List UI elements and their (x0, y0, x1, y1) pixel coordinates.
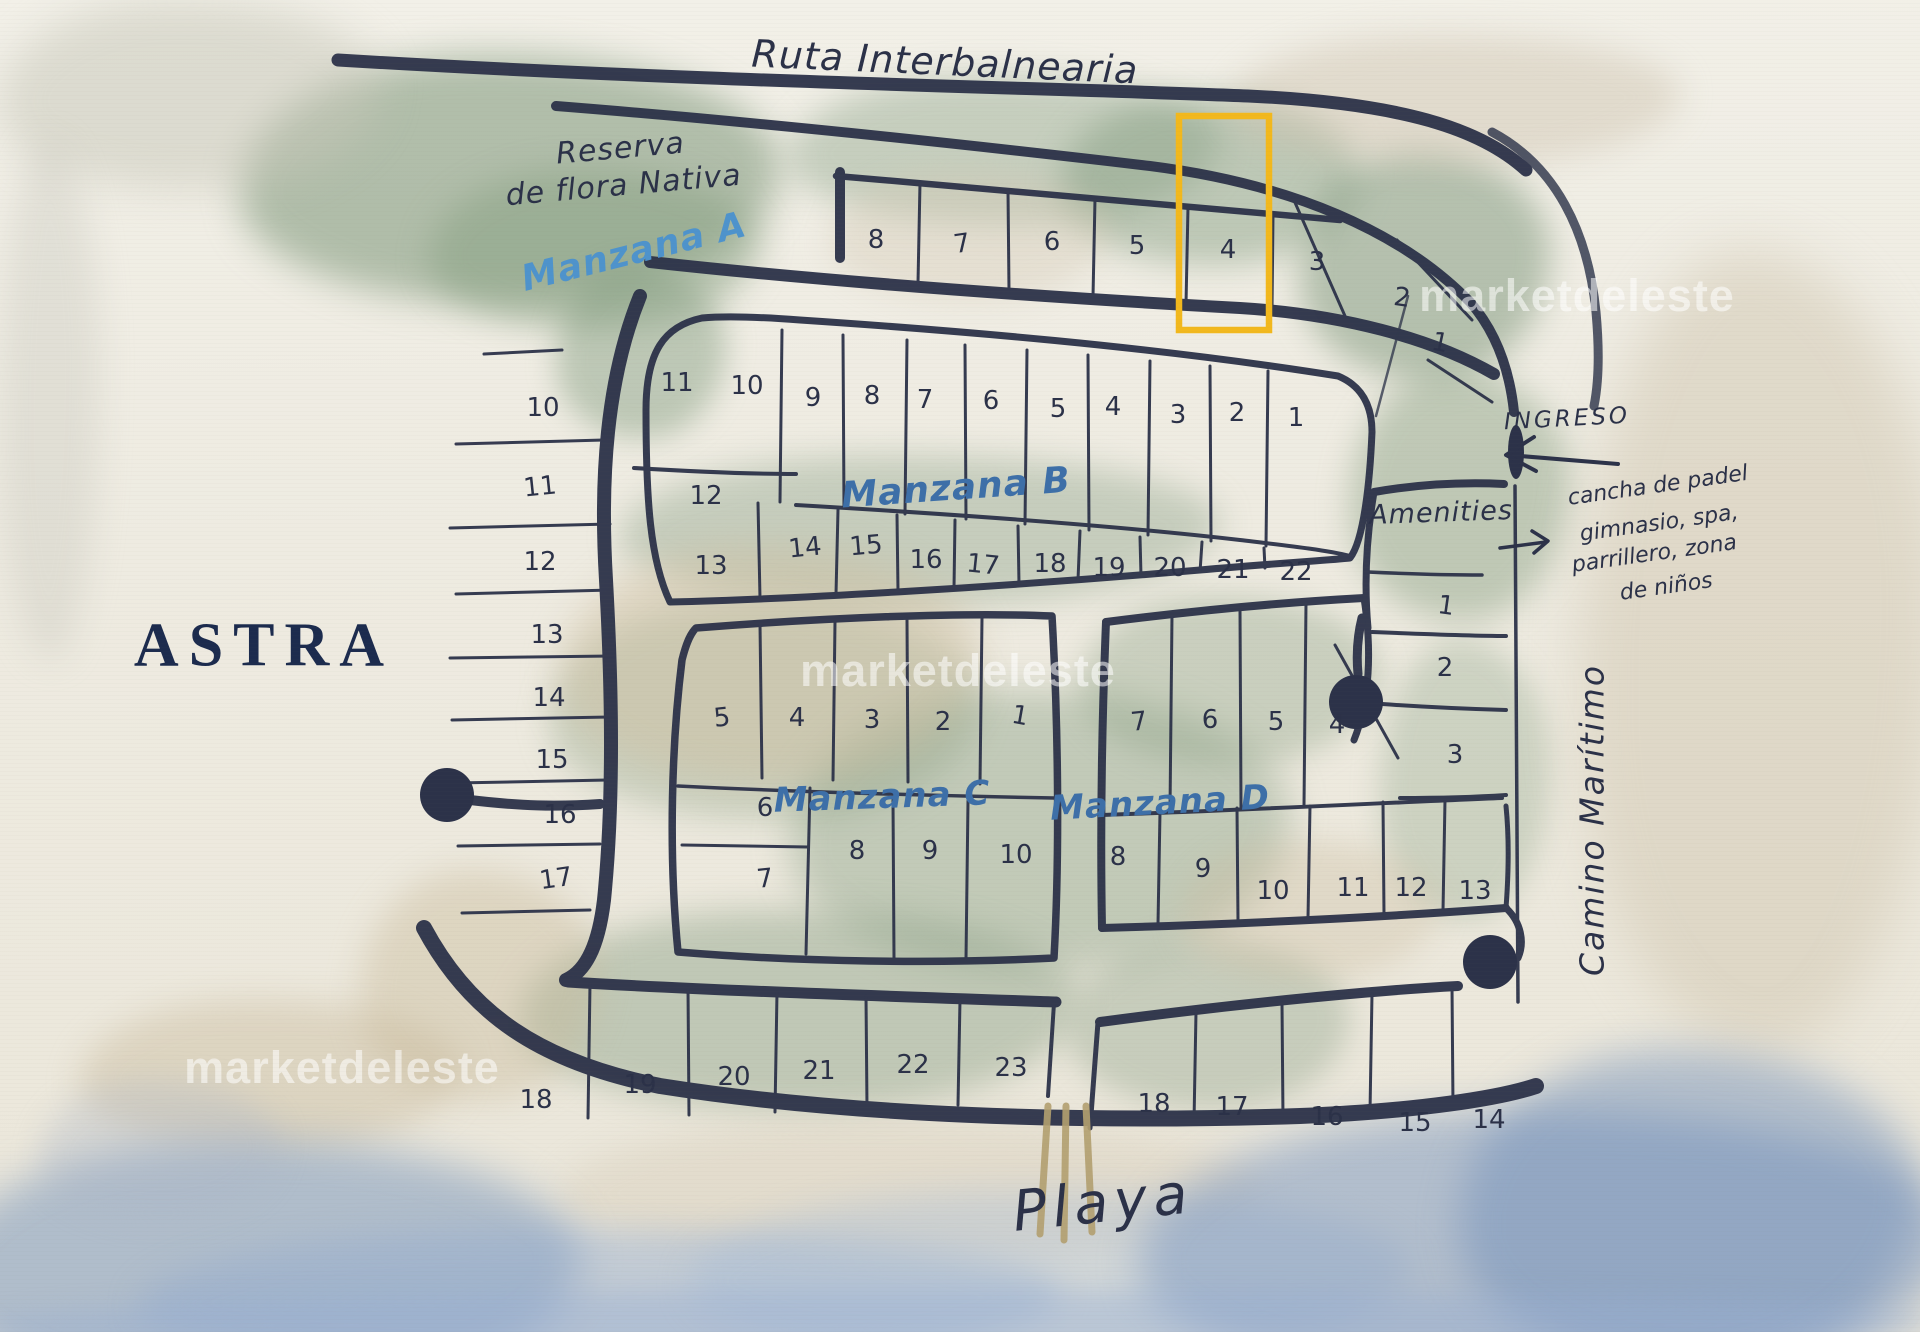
lot-number-south-west-row-20: 20 (717, 1062, 750, 1092)
lot-number-manzana-b-top-9: 9 (805, 383, 822, 413)
lot-number-amenities-3: 3 (1447, 740, 1464, 770)
lot-number-west-strip-12: 12 (523, 547, 556, 577)
lot-number-manzana-b-top-7: 7 (917, 385, 934, 415)
lot-number-west-strip-10: 10 (526, 393, 559, 423)
lot-number-manzana-b-top-10: 10 (730, 371, 763, 401)
lot-number-west-strip-13: 13 (530, 620, 563, 650)
lot-number-south-east-row-17: 17 (1215, 1092, 1248, 1122)
lot-number-manzana-b-bottom-19: 19 (1092, 553, 1125, 583)
lot-number-manzana-a-4: 4 (1220, 235, 1237, 265)
lot-numbers-layer: 8765432111109876543211213141516171819202… (0, 0, 1920, 1332)
lot-number-manzana-b-mid-12: 12 (689, 481, 722, 511)
lot-number-south-east-row-14: 14 (1472, 1105, 1505, 1135)
lot-number-manzana-b-top-2: 2 (1229, 398, 1246, 428)
lot-number-manzana-b-bottom-16: 16 (909, 545, 942, 575)
lot-number-manzana-b-bottom-15: 15 (848, 530, 884, 563)
lot-number-south-west-row-21: 21 (802, 1056, 835, 1086)
lot-number-south-east-row-15: 15 (1398, 1108, 1431, 1138)
lot-number-manzana-d-bottom-10: 10 (1256, 876, 1289, 906)
lot-number-amenities-2: 2 (1437, 653, 1454, 683)
lot-number-manzana-b-bottom-13: 13 (694, 551, 727, 581)
lot-number-manzana-b-top-5: 5 (1050, 394, 1067, 424)
lot-number-manzana-d-bottom-8: 8 (1110, 842, 1127, 872)
lot-number-manzana-b-top-4: 4 (1105, 392, 1122, 422)
lot-number-manzana-a-6: 6 (1044, 227, 1061, 257)
lot-number-manzana-b-bottom-22: 22 (1279, 557, 1312, 587)
lot-number-manzana-b-top-6: 6 (983, 386, 1000, 416)
lot-number-manzana-b-bottom-18: 18 (1033, 549, 1066, 579)
lot-number-manzana-b-bottom-14: 14 (787, 531, 823, 564)
lot-number-manzana-c-bottom-10: 10 (999, 840, 1032, 870)
lot-number-manzana-c-bottom-9: 9 (922, 836, 939, 866)
lot-number-manzana-d-top-7: 7 (1129, 706, 1149, 738)
lot-number-west-strip-14: 14 (532, 683, 565, 713)
lot-number-manzana-d-bottom-11: 11 (1336, 873, 1369, 903)
lot-number-south-east-row-16: 16 (1310, 1102, 1343, 1132)
lot-number-amenities-1: 1 (1436, 590, 1457, 622)
lot-number-manzana-a-1: 1 (1429, 327, 1451, 360)
lot-number-south-west-row-23: 23 (994, 1053, 1027, 1083)
lot-number-manzana-c-bottom-8: 8 (849, 836, 866, 866)
lot-number-manzana-b-bottom-20: 20 (1153, 553, 1186, 583)
lot-number-manzana-d-bottom-13: 13 (1458, 876, 1491, 906)
lot-number-manzana-c-top-1: 1 (1009, 700, 1031, 732)
lot-number-manzana-c-left-7: 7 (755, 863, 775, 895)
lot-number-manzana-b-bottom-17: 17 (965, 548, 1001, 581)
lot-number-manzana-d-top-4: 4 (1329, 710, 1346, 740)
lot-number-manzana-d-bottom-12: 12 (1394, 873, 1427, 903)
lot-number-west-strip-11: 11 (522, 470, 558, 503)
lot-number-west-strip-15: 15 (535, 745, 568, 775)
lot-number-manzana-d-top-5: 5 (1268, 707, 1285, 737)
lot-number-manzana-a-3: 3 (1309, 247, 1326, 277)
lot-number-west-strip-17: 17 (538, 862, 575, 896)
lot-number-south-west-row-18: 18 (519, 1085, 552, 1115)
lot-number-manzana-d-bottom-9: 9 (1195, 854, 1212, 884)
lot-number-manzana-c-left-6: 6 (757, 793, 774, 823)
lot-number-manzana-a-5: 5 (1129, 231, 1146, 261)
lot-number-manzana-c-top-5: 5 (712, 702, 732, 734)
lot-number-south-west-row-19: 19 (623, 1070, 656, 1100)
lot-number-manzana-c-top-4: 4 (789, 703, 806, 733)
lot-number-manzana-b-bottom-21: 21 (1216, 555, 1249, 585)
lot-number-manzana-c-top-3: 3 (864, 705, 881, 735)
lot-number-manzana-a-2: 2 (1392, 282, 1413, 314)
lot-number-manzana-b-top-11: 11 (660, 368, 693, 398)
lot-number-west-strip-16: 16 (543, 800, 576, 830)
lot-number-manzana-a-8: 8 (868, 225, 885, 255)
lot-number-manzana-d-top-6: 6 (1202, 705, 1219, 735)
lot-number-manzana-a-7: 7 (952, 228, 973, 260)
lot-number-south-east-row-18: 18 (1137, 1089, 1170, 1119)
plot-map: ASTRA Ruta Interbalnearia Reserva de flo… (0, 0, 1920, 1332)
lot-number-manzana-b-top-3: 3 (1170, 400, 1187, 430)
lot-number-manzana-b-top-8: 8 (864, 381, 881, 411)
lot-number-manzana-b-top-1: 1 (1288, 403, 1305, 433)
lot-number-south-west-row-22: 22 (896, 1050, 929, 1080)
lot-number-manzana-c-top-2: 2 (935, 707, 952, 737)
